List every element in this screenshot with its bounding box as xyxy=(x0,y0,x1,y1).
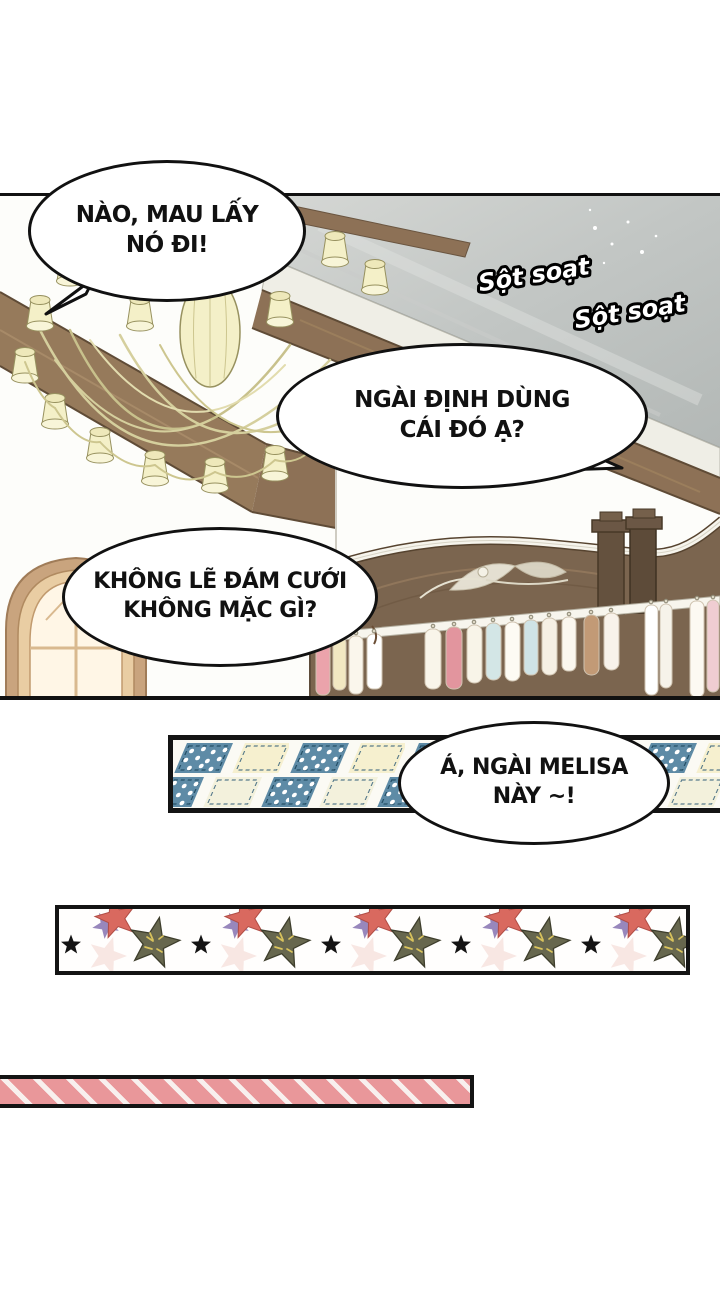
bubble-text-line: NÀY ~! xyxy=(493,783,575,812)
bubble-text-line: NGÀI ĐỊNH DÙNG xyxy=(354,386,570,416)
sfx-text: Sột soạt xyxy=(476,252,593,297)
bubble-text-line: NÀO, MAU LẤY xyxy=(76,201,259,231)
bubble-text-line: CÁI ĐÓ Ạ? xyxy=(400,416,525,446)
sfx-text: Sột soạt xyxy=(572,289,689,334)
washi-strip-stars xyxy=(55,905,690,975)
bubble-text-line: Á, NGÀI MELISA xyxy=(440,754,628,783)
speech-bubble-1: NÀO, MAU LẤY NÓ ĐI! xyxy=(28,160,306,302)
speech-bubble-4: Á, NGÀI MELISA NÀY ~! xyxy=(398,721,670,845)
speech-bubble-3: KHÔNG LẼ ĐÁM CƯỚI KHÔNG MẶC GÌ? xyxy=(62,527,378,667)
bubble-text-line: KHÔNG LẼ ĐÁM CƯỚI xyxy=(93,568,346,597)
speech-bubble-2: NGÀI ĐỊNH DÙNG CÁI ĐÓ Ạ? xyxy=(276,343,648,489)
comic-page: Sột soạt Sột soạt NÀO, MAU LẤY NÓ ĐI! NG… xyxy=(0,0,720,1305)
washi-strip-pink xyxy=(0,1075,474,1108)
bubble-text-line: KHÔNG MẶC GÌ? xyxy=(123,597,317,626)
bubble-text-line: NÓ ĐI! xyxy=(126,231,208,261)
